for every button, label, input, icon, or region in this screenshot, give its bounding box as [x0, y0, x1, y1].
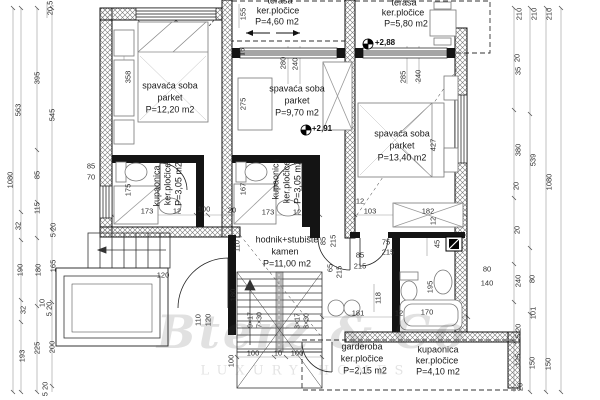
floor-plan-canvas: spavaća sobaparketP=12,20 m2spavaća soba… [0, 0, 600, 400]
shaft-symbol [446, 237, 462, 251]
slider-arrows [246, 30, 300, 36]
floor-plan-linework [0, 0, 600, 400]
staircase [56, 233, 322, 388]
